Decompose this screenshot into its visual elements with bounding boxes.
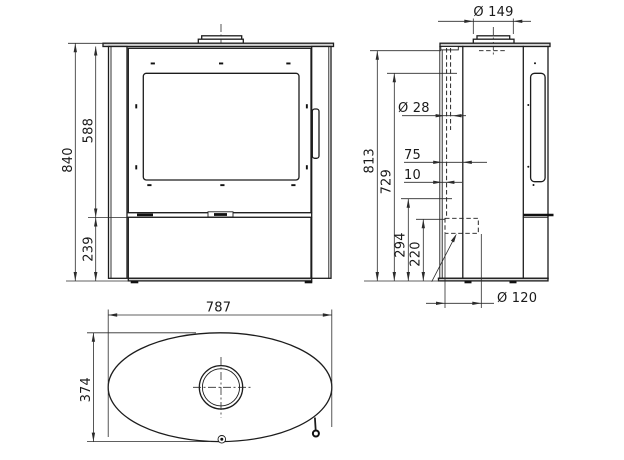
leader-arrow <box>451 234 457 243</box>
top-view: 787 374 <box>79 301 332 444</box>
door-glass-window <box>143 73 299 180</box>
dim-intake-pipe-diameter: Ø 28 <box>398 101 430 116</box>
right-side-panel <box>312 47 331 279</box>
side-view: Ø 149 Ø 28 75 10 <box>363 5 554 308</box>
dim-flue-collar-diameter: Ø 149 <box>473 5 513 20</box>
foot-side-front <box>465 281 472 283</box>
rear-outlet-knockout <box>445 218 478 233</box>
dim-outlet-center-height: 220 <box>409 241 424 266</box>
door-handle-top <box>313 418 319 437</box>
dim-top-overall-depth: 374 <box>79 377 94 402</box>
dim-front-overall-height: 840 <box>61 147 76 172</box>
technical-drawing-page: 840 588 239 <box>0 0 624 460</box>
door-handle-side <box>531 73 546 181</box>
rear-step <box>441 47 459 50</box>
left-side-panel <box>109 47 128 279</box>
top-plate-front <box>103 43 334 46</box>
foot-side-rear <box>510 281 517 283</box>
latch-knob-top <box>218 436 226 444</box>
dim-intake-gap: 10 <box>404 168 421 183</box>
base-compartment-front <box>128 217 311 278</box>
dim-top-overall-width: 787 <box>206 301 231 316</box>
side-dimensions: Ø 149 Ø 28 75 10 <box>363 5 538 308</box>
stove-technical-drawing: 840 588 239 <box>0 0 624 460</box>
foot-right <box>305 281 313 283</box>
divider-side <box>523 215 553 217</box>
dim-rear-outlet-diameter: Ø 120 <box>497 291 537 306</box>
divider-latch <box>137 214 153 217</box>
dim-flue-center-height: 813 <box>363 148 378 173</box>
divider-front <box>127 212 312 218</box>
door-handle-front <box>312 109 319 158</box>
dim-intake-offset: 75 <box>404 148 421 163</box>
dim-outlet-top-height: 294 <box>394 232 409 257</box>
foot-left <box>131 281 139 283</box>
top-plate-side <box>440 43 550 46</box>
base-band-front <box>128 278 311 281</box>
front-view: 840 588 239 <box>61 24 334 283</box>
base-band-side <box>439 278 549 281</box>
dim-intake-top-height: 729 <box>380 169 395 194</box>
dim-front-body-height: 588 <box>81 118 96 143</box>
dim-front-base-height: 239 <box>81 236 96 261</box>
